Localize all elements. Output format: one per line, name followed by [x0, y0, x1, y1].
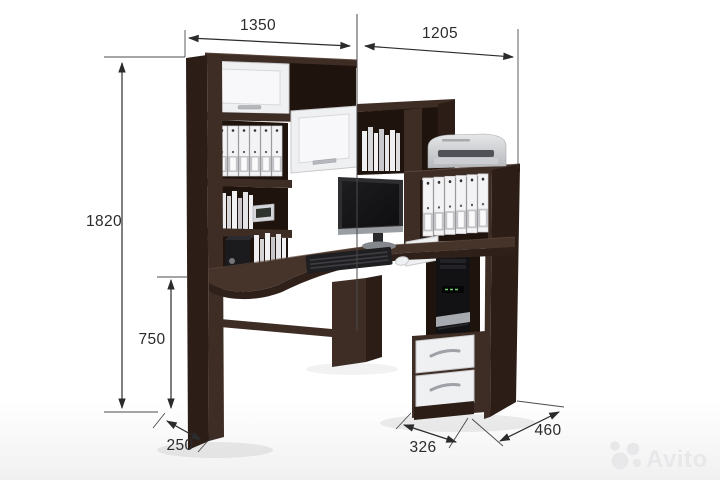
printer-tray: [434, 158, 498, 164]
dim-label-326: 326: [409, 439, 436, 456]
dim-label-250: 250: [166, 437, 193, 454]
right-side-panel: [484, 164, 520, 419]
corner-desk-diagram: 1350 1205 1820 750 250 326 460 Avito: [0, 0, 720, 480]
monitor-screen: [342, 181, 399, 228]
drawer-unit: [412, 331, 486, 420]
left-side-panel: [186, 54, 224, 450]
dim-label-1350: 1350: [240, 17, 276, 34]
pc-tower: [436, 245, 470, 337]
dim-label-1820: 1820: [86, 213, 122, 230]
printer-slot: [438, 150, 494, 157]
dim-line-1205: [365, 46, 513, 57]
dim-label-460: 460: [534, 422, 561, 439]
watermark-text: Avito: [646, 446, 708, 473]
door-handle: [238, 106, 261, 110]
dim-label-750: 750: [138, 331, 165, 348]
printer: [428, 134, 506, 168]
cabinet-door-corner: [291, 106, 357, 173]
product-dimension-image: 1350 1205 1820 750 250 326 460 Avito: [0, 0, 720, 480]
dim-line-1350: [189, 38, 350, 46]
under-desk-shelf: [209, 318, 332, 337]
digital-clock: [253, 204, 274, 222]
monitor: [338, 177, 403, 251]
clock-display: [256, 208, 271, 219]
dim-label-1205: 1205: [422, 25, 458, 42]
drawer-top: [416, 335, 474, 373]
